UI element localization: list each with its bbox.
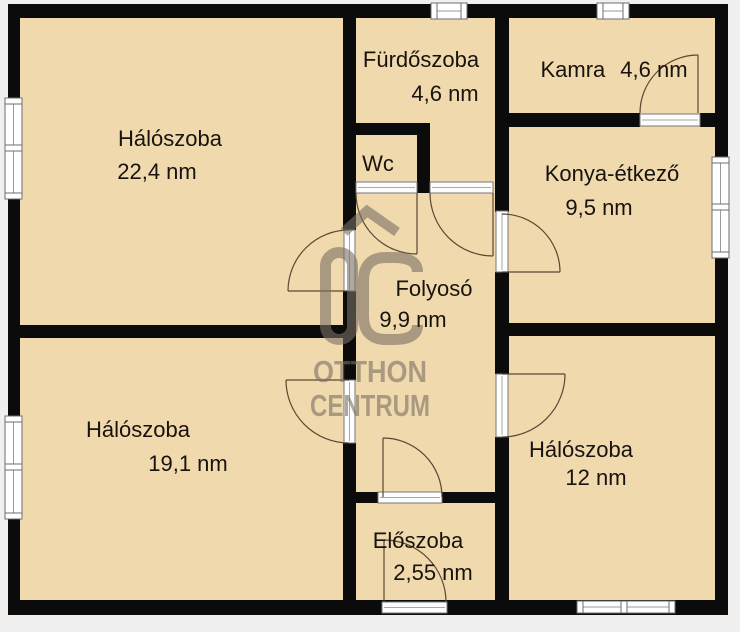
window-top-bathroom [431,3,467,19]
watermark-text-line2: CENTRUM [310,388,430,423]
door-sill-front-entrance [382,602,447,613]
window-right-kitchen [712,157,729,258]
window-left-top [5,98,22,199]
door-sill-entry [378,492,442,503]
wall-segment [417,123,430,193]
watermark-text-line1: OTTHON [313,354,427,389]
wall-segment [442,492,509,503]
wall-segment [495,437,509,603]
wall-segment [343,443,356,603]
wall-segment [343,492,378,503]
window-top-pantry [597,3,629,19]
door-sill-pantry [640,114,700,126]
wall-segment [495,323,728,336]
floor-plan-drawing: OTTHON CENTRUM [0,0,740,632]
door-sill-kitchen [496,211,508,272]
floor-plan: OTTHON CENTRUM Hálószoba 22,4 nm Fürdősz… [0,0,740,632]
wall-segment [8,325,356,338]
wall-segment [343,123,430,135]
door-sill-wc [356,182,417,193]
window-left-bottom [5,416,22,519]
wall-segment [8,4,20,615]
window-bottom-bedroom [577,601,675,613]
wall-segment [700,113,728,127]
door-sill-bathroom [430,182,493,193]
wall-segment [715,4,728,615]
door-sill-bedroom-bottom-right [496,374,508,437]
wall-segment [495,113,640,127]
